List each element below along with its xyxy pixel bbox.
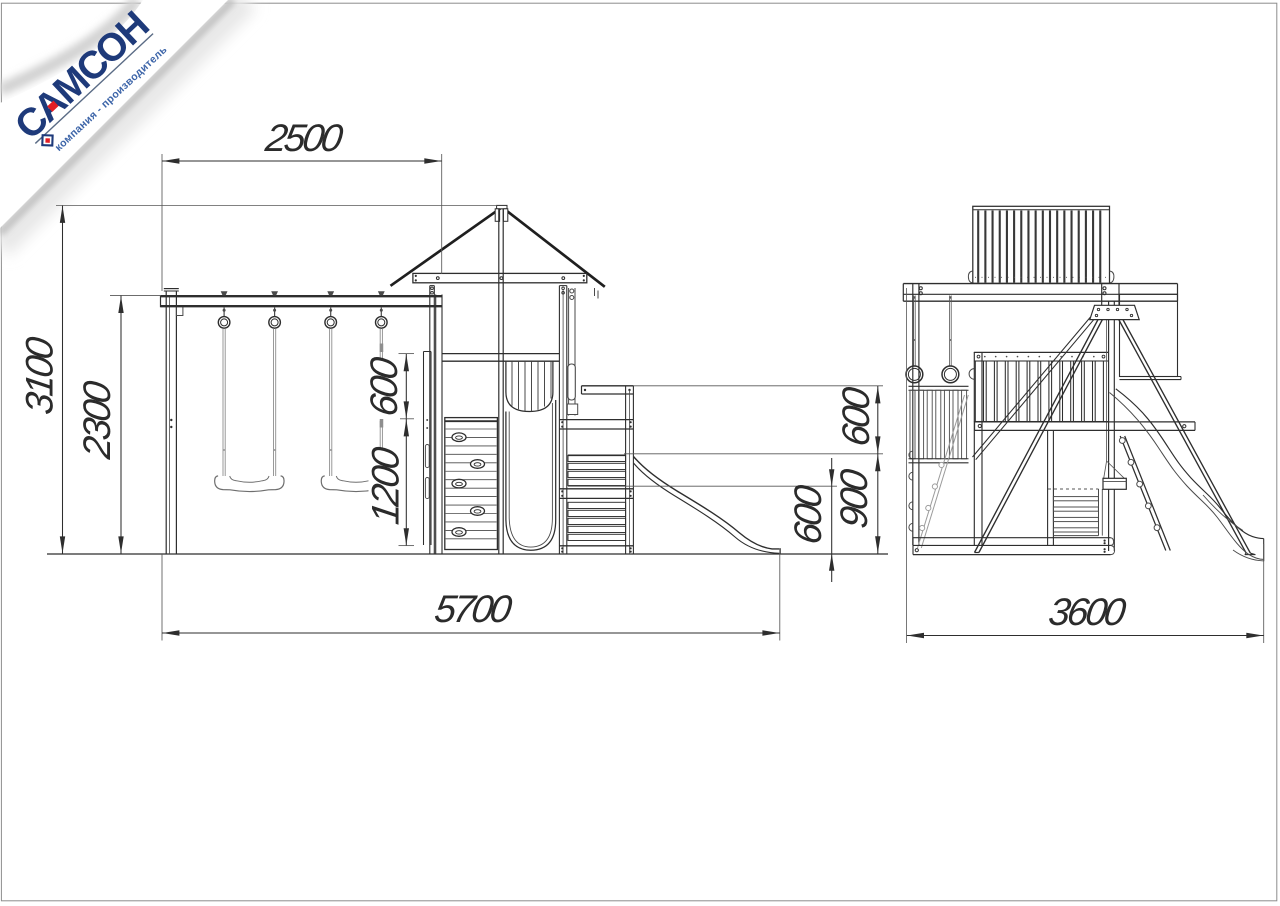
- svg-text:3100: 3100: [19, 334, 62, 417]
- svg-text:2300: 2300: [76, 378, 119, 462]
- svg-text:1200: 1200: [365, 444, 408, 527]
- svg-text:900: 900: [833, 466, 876, 531]
- svg-text:600: 600: [363, 354, 406, 419]
- svg-text:600: 600: [787, 482, 830, 547]
- svg-text:3600: 3600: [1046, 591, 1129, 634]
- svg-text:5700: 5700: [432, 588, 515, 631]
- svg-text:2500: 2500: [262, 117, 346, 160]
- svg-text:600: 600: [835, 384, 878, 449]
